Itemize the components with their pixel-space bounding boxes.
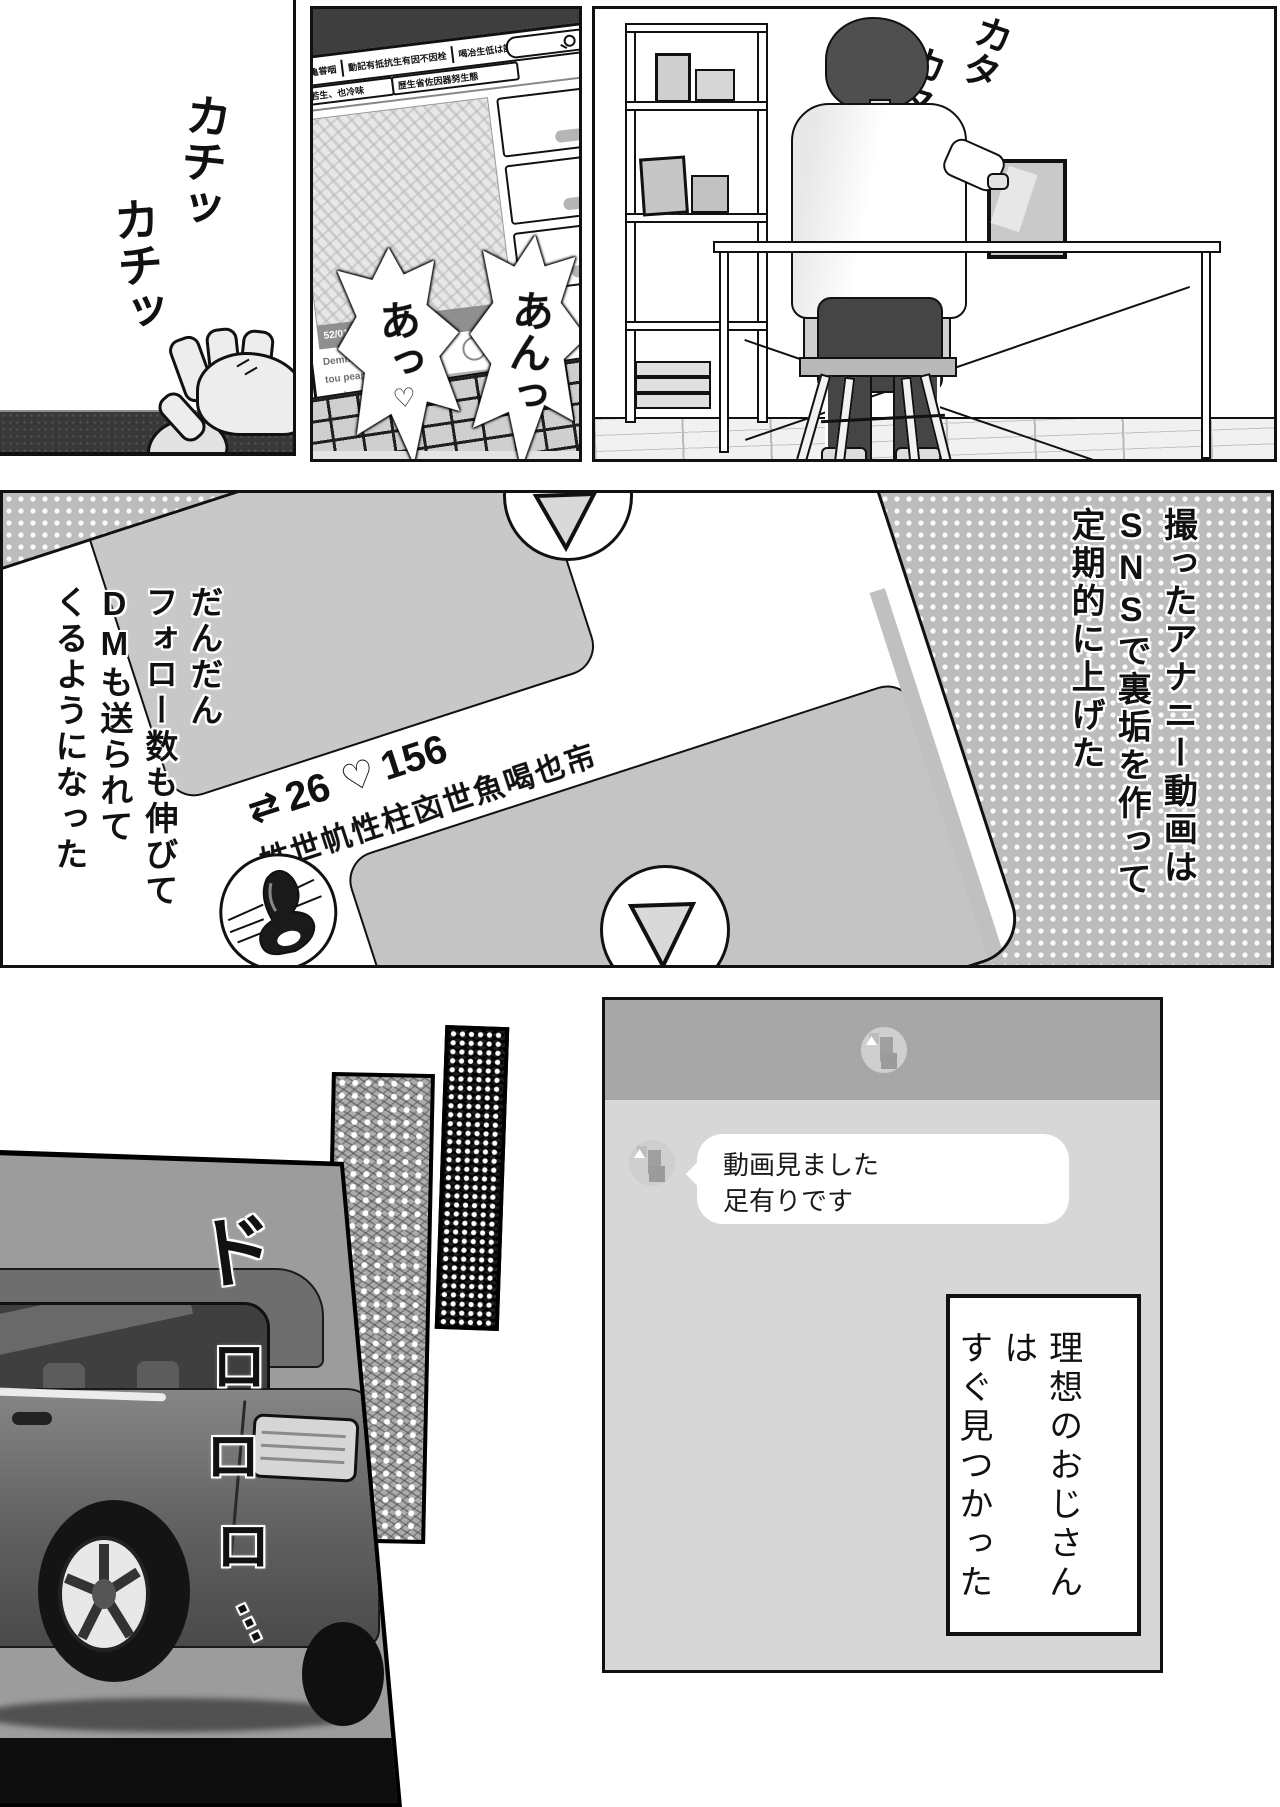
desk-leg: [719, 249, 729, 453]
chat-profile-avatar: [861, 1027, 907, 1073]
narration-line: DMも送られて: [94, 585, 133, 965]
heart-icon: ♡: [391, 381, 417, 414]
sfx-burst: あっ♡: [328, 241, 472, 462]
chat-message-line: 足有りです: [723, 1183, 1069, 1219]
shelf-board: [625, 23, 768, 33]
person-head: [825, 17, 929, 111]
sfx-engine-char: ロ: [206, 1412, 260, 1491]
sfx-moan-2: あんっ: [502, 288, 553, 417]
narration-line: 理想のおじさんは: [995, 1330, 1085, 1630]
narration-line: くるようになった: [49, 585, 88, 965]
window-glare: [0, 1302, 193, 1355]
sfx-moan-1: あっ: [373, 297, 424, 385]
sfx-typing-1: カタ: [947, 6, 1023, 95]
towel-stack: [635, 393, 711, 409]
narration-line: SNSで裏垢を作って: [1111, 507, 1151, 927]
towel-stack: [635, 361, 711, 377]
retweet-count: 26: [280, 765, 336, 822]
sfx-burst: あんっ: [461, 231, 582, 462]
chat-message-bubble: 動画見ました 足有りです: [697, 1134, 1069, 1224]
narration-right: 撮ったアナニー動画は SNSで裏垢を作って 定期的に上げた: [1059, 507, 1197, 927]
panel-mouse-hand: カチッ カチッ: [0, 0, 296, 456]
picture-frame: [639, 155, 689, 216]
car-shadow: [0, 1698, 360, 1732]
desk-top: [713, 241, 1221, 253]
car-tail-light: [250, 1413, 359, 1482]
video-thumbnail: [504, 155, 582, 226]
narration-box: 理想のおじさんは すぐ見つかった: [946, 1294, 1141, 1636]
picture-frame: [655, 53, 691, 103]
panel-sns-phone: ⇄26 ♡156 姓世㠶性柱㐫世魚喝也㠵: [0, 490, 1274, 968]
sfx-click-1: カチッ: [161, 89, 241, 233]
narration-line: すぐ見つかった: [950, 1330, 995, 1630]
scroll-down-circle: [503, 490, 633, 561]
sfx-engine-char: ロ: [216, 1502, 270, 1581]
desk-leg: [1201, 249, 1211, 459]
car-rear-tire: [302, 1622, 384, 1726]
thumbnail-duration-pill: [563, 195, 582, 210]
narration-line: フォロー数も伸びて: [139, 585, 178, 965]
narration-box-text: 理想のおじさんは すぐ見つかった: [950, 1298, 1105, 1630]
panel-desk-room: カタ カタ: [592, 6, 1277, 462]
sfx-engine-char: ド: [189, 1185, 282, 1307]
heart-icon: ♡: [335, 750, 381, 803]
shelf-board: [625, 321, 768, 331]
chat-message-line: 動画見ました: [723, 1147, 1069, 1183]
car-tire: [38, 1500, 190, 1682]
shelf-board: [625, 101, 768, 111]
sfx-click-2: カチッ: [99, 194, 174, 336]
magnifier-icon: [563, 34, 576, 47]
down-triangle-icon: [603, 868, 721, 968]
shelf-box: [691, 175, 729, 213]
narration-line: だんだん: [184, 585, 223, 965]
down-triangle-icon: [506, 490, 624, 552]
sfx-engine-char: ロ: [212, 1322, 266, 1401]
decor-halftone-bar-dark: [435, 1025, 510, 1331]
road: [0, 1738, 402, 1807]
car-door-handle: [12, 1412, 52, 1425]
towel-stack: [635, 377, 711, 393]
shelf-box: [695, 69, 735, 101]
car-artwork: ド ロ ロ ロ …: [0, 1150, 402, 1807]
hand-palm: [196, 352, 296, 436]
person-hand: [987, 173, 1009, 190]
panel-laptop: 冑促生亀甞咽 動記有抵抗生有因不因栓 喝冶生低は記喝 幟記若生、也冷味 歴生省佐…: [310, 6, 582, 462]
wheel-rim: [38, 1500, 190, 1682]
thumbnail-duration-pill: [555, 128, 582, 143]
retweet-icon: ⇄: [242, 781, 286, 834]
video-thumbnail: [496, 87, 582, 158]
shelf-post: [757, 23, 768, 423]
narration-line: 撮ったアナニー動画は: [1157, 507, 1197, 927]
narration-line: 定期的に上げた: [1065, 507, 1105, 927]
scroll-down-circle: [600, 865, 730, 968]
narration-left: だんだん フォロー数も伸びて DMも送られて くるようになった: [43, 585, 223, 965]
manga-page: カチッ カチッ 冑促生亀甞咽 動記有抵抗生有因不因栓 喝冶生低は記喝 幟記若生、…: [0, 0, 1280, 1807]
person-shirt: [791, 103, 967, 319]
chat-sender-avatar: [629, 1140, 675, 1186]
panel-car: ド ロ ロ ロ …: [0, 1150, 402, 1807]
panel-dm-chat: 動画見ました 足有りです 理想のおじさんは すぐ見つかった: [602, 997, 1163, 1673]
